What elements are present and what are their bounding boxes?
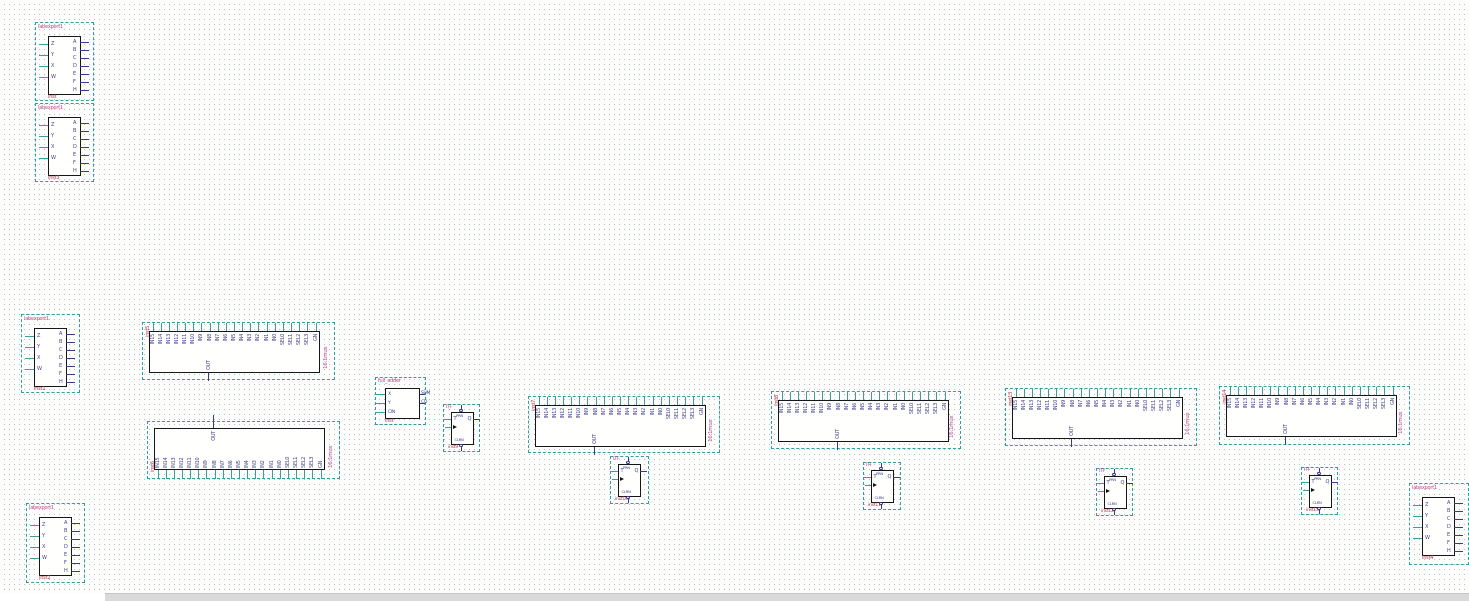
- mux-input-pin-stub[interactable]: [636, 397, 637, 405]
- mux-pin-label: IN9: [198, 334, 204, 342]
- mux-input-pin-stub[interactable]: [1254, 387, 1255, 395]
- mux-pin-label: IN4: [1102, 400, 1108, 408]
- mux-pin-label: IN5: [236, 460, 242, 468]
- output-pin-stub[interactable]: [80, 171, 89, 172]
- output-pin-stub[interactable]: [80, 155, 89, 156]
- mux-input-pin-stub[interactable]: [296, 470, 297, 479]
- mux-pin-label: IN5: [1308, 398, 1314, 406]
- input-pin-stub[interactable]: [39, 125, 48, 126]
- mux-input-pin-stub[interactable]: [1032, 389, 1033, 397]
- output-pin-stub[interactable]: [80, 58, 89, 59]
- mux-pin-label: IN12: [1037, 400, 1043, 410]
- mux-input-pin-stub[interactable]: [612, 397, 613, 405]
- mux-input-pin-stub[interactable]: [1230, 387, 1231, 395]
- mux-input-pin-stub[interactable]: [1303, 387, 1304, 395]
- component-type-label: labexport1: [38, 24, 63, 30]
- mux-input-pin-stub[interactable]: [1368, 387, 1369, 395]
- input-pin-stub[interactable]: [25, 369, 34, 370]
- clear-bubble-icon: [1317, 507, 1321, 511]
- mux-input-pin-stub[interactable]: [661, 397, 662, 405]
- output-pin-stub[interactable]: [80, 123, 89, 124]
- mux-pin-label: IN4: [868, 403, 874, 411]
- mux-input-pin-stub[interactable]: [1162, 389, 1163, 397]
- mux-input-pin-stub[interactable]: [847, 392, 848, 400]
- mux-out-pin-stub[interactable]: [837, 442, 838, 450]
- mux-input-pin-stub[interactable]: [628, 397, 629, 405]
- output-pin-stub[interactable]: [71, 547, 80, 548]
- output-pin-stub[interactable]: [1454, 527, 1463, 528]
- full_adder-fa1[interactable]: full_adderinstXYCINSUMCO: [375, 377, 426, 425]
- input-pin-stub[interactable]: [1413, 538, 1422, 539]
- mux-input-pin-stub[interactable]: [912, 392, 913, 400]
- instance-label: inst8: [774, 395, 780, 406]
- clock-pin-stub[interactable]: [445, 427, 451, 428]
- mux-input-pin-stub[interactable]: [620, 397, 621, 405]
- horizontal-scrollbar[interactable]: [105, 593, 1469, 601]
- mux-pin-label: SEL3: [304, 334, 310, 345]
- mux-input-pin-stub[interactable]: [201, 323, 202, 331]
- mux-pin-label: IN6: [1300, 398, 1306, 406]
- pin-label: E: [64, 553, 67, 558]
- mux-pin-label: IN12: [803, 403, 809, 413]
- mux-input-pin-stub[interactable]: [255, 470, 256, 479]
- mux-pin-label: SEL1: [288, 334, 294, 345]
- mux-input-pin-stub[interactable]: [1352, 387, 1353, 395]
- mux-pin-label: IN9: [1061, 400, 1067, 408]
- mux-input-pin-stub[interactable]: [210, 323, 211, 331]
- mux-out-pin-stub[interactable]: [1071, 439, 1072, 447]
- tff-t3[interactable]: TFFinst11PRNTQCLRN: [863, 462, 901, 510]
- mux-pin-label: IN14: [163, 457, 169, 467]
- mux-pin-label: IN14: [1235, 398, 1241, 408]
- mux-input-pin-stub[interactable]: [928, 392, 929, 400]
- mux-input-pin-stub[interactable]: [1393, 387, 1394, 395]
- pin-label: Q: [635, 469, 639, 474]
- tff-t4[interactable]: TFFinst12PRNTQCLRN: [1096, 468, 1133, 516]
- tff-t2[interactable]: TFFinst10PRNTQCLRN: [610, 456, 649, 504]
- input-pin-stub[interactable]: [30, 536, 39, 537]
- port_block-u2[interactable]: labexport1inst3ZYXWABCDEFH: [35, 103, 94, 182]
- mux-input-pin-stub[interactable]: [1154, 389, 1155, 397]
- input-pin-stub[interactable]: [30, 558, 39, 559]
- mux-input-pin-stub[interactable]: [904, 392, 905, 400]
- mux-input-pin-stub[interactable]: [1081, 389, 1082, 397]
- t-input-pin-stub[interactable]: [864, 477, 871, 478]
- mux-input-pin-stub[interactable]: [1064, 389, 1065, 397]
- mux-input-pin-stub[interactable]: [275, 323, 276, 331]
- instance-label: inst9: [448, 445, 458, 451]
- mux-input-pin-stub[interactable]: [1238, 387, 1239, 395]
- output-pin-stub[interactable]: [71, 531, 80, 532]
- mux-input-pin-stub[interactable]: [863, 392, 864, 400]
- mux-out-pin-stub[interactable]: [1285, 437, 1286, 445]
- mux-input-pin-stub[interactable]: [272, 470, 273, 479]
- input-pin-stub[interactable]: [25, 358, 34, 359]
- mux-input-pin-stub[interactable]: [604, 397, 605, 405]
- output-pin-stub[interactable]: [80, 139, 89, 140]
- instance-label: inst13: [1008, 392, 1014, 406]
- mux-input-pin-stub[interactable]: [1089, 389, 1090, 397]
- mux-input-pin-stub[interactable]: [1360, 387, 1361, 395]
- mux-input-pin-stub[interactable]: [215, 470, 216, 479]
- q-output-pin-stub[interactable]: [473, 419, 480, 420]
- instance-label: inst: [385, 418, 393, 424]
- input-pin-stub[interactable]: [30, 525, 39, 526]
- mux-input-pin-stub[interactable]: [644, 397, 645, 405]
- pin-label: CLRN: [1108, 502, 1117, 506]
- mux-pin-label: IN0: [1349, 398, 1355, 406]
- input-pin-stub[interactable]: [1413, 527, 1422, 528]
- input-pin-stub[interactable]: [376, 412, 385, 413]
- mux-input-pin-stub[interactable]: [839, 392, 840, 400]
- mux-input-pin-stub[interactable]: [1270, 387, 1271, 395]
- mux-input-pin-stub[interactable]: [1319, 387, 1320, 395]
- pin-label: Z: [51, 123, 54, 128]
- t-input-pin-stub[interactable]: [444, 419, 451, 420]
- mux-input-pin-stub[interactable]: [226, 323, 227, 331]
- output-pin-stub[interactable]: [1454, 551, 1463, 552]
- mux-out-pin-stub[interactable]: [208, 373, 209, 381]
- mux-input-pin-stub[interactable]: [190, 470, 191, 479]
- mux-input-pin-stub[interactable]: [312, 470, 313, 479]
- mux-input-pin-stub[interactable]: [218, 323, 219, 331]
- mux-pin-label: IN11: [182, 334, 188, 344]
- mux-input-pin-stub[interactable]: [291, 323, 292, 331]
- mux-input-pin-stub[interactable]: [879, 392, 880, 400]
- mux-input-pin-stub[interactable]: [185, 323, 186, 331]
- output-pin-stub[interactable]: [80, 74, 89, 75]
- mux-pin-label: IN9: [827, 403, 833, 411]
- input-pin-stub[interactable]: [39, 44, 48, 45]
- mux-input-pin-stub[interactable]: [1016, 389, 1017, 397]
- mux-input-pin-stub[interactable]: [283, 323, 284, 331]
- mux-input-pin-stub[interactable]: [571, 397, 572, 405]
- clock-triangle-icon: [453, 425, 457, 429]
- mux-input-pin-stub[interactable]: [1384, 387, 1385, 395]
- mux-input-pin-stub[interactable]: [247, 470, 248, 479]
- mux-input-pin-stub[interactable]: [547, 397, 548, 405]
- component-type-label: TFF: [1303, 469, 1310, 473]
- mux-input-pin-stub[interactable]: [182, 470, 183, 479]
- mux-input-pin-stub[interactable]: [267, 323, 268, 331]
- mux-input-pin-stub[interactable]: [174, 470, 175, 479]
- mux-input-pin-stub[interactable]: [1246, 387, 1247, 395]
- mux-pin-label: SEL2: [1159, 400, 1165, 411]
- mux-input-pin-stub[interactable]: [1097, 389, 1098, 397]
- pin-label: E: [59, 364, 62, 369]
- mux-input-pin-stub[interactable]: [1335, 387, 1336, 395]
- mux-input-pin-stub[interactable]: [161, 323, 162, 331]
- port_block-u3[interactable]: labexport1inst1ZYXWABCDEFH: [21, 314, 80, 393]
- mux-input-pin-stub[interactable]: [790, 392, 791, 400]
- t-input-pin-stub[interactable]: [1302, 482, 1309, 483]
- input-pin-stub[interactable]: [376, 403, 385, 404]
- t-input-pin-stub[interactable]: [611, 471, 618, 472]
- mux-input-pin-stub[interactable]: [677, 397, 678, 405]
- output-pin-stub[interactable]: [66, 374, 75, 375]
- mux-pin-label: SEL0: [1357, 398, 1363, 409]
- output-pin-stub[interactable]: [71, 571, 80, 572]
- mux-input-pin-stub[interactable]: [1262, 387, 1263, 395]
- mux-input-pin-stub[interactable]: [1376, 387, 1377, 395]
- mux-pin-label: IN5: [617, 408, 623, 416]
- instance-label: inst6: [150, 461, 156, 472]
- pin-label: Q: [468, 417, 472, 422]
- mux-input-pin-stub[interactable]: [1048, 389, 1049, 397]
- mux-input-pin-stub[interactable]: [193, 323, 194, 331]
- output-pin-stub[interactable]: [71, 555, 80, 556]
- output-pin-stub[interactable]: [66, 366, 75, 367]
- mux-pin-label: SEL3: [1381, 398, 1387, 409]
- mux-input-pin-stub[interactable]: [702, 397, 703, 405]
- mux-pin-label: SEL2: [301, 456, 307, 467]
- mux-pin-label: IN1: [650, 408, 656, 416]
- mux16-m6[interactable]: IN15IN14IN13IN12IN11IN10IN9IN8IN7IN6IN5I…: [1219, 386, 1410, 445]
- mux-input-pin-stub[interactable]: [177, 323, 178, 331]
- pin-label: W: [42, 556, 47, 561]
- input-pin-stub[interactable]: [39, 158, 48, 159]
- schematic-canvas[interactable]: labexport1instZYXWABCDEFHlabexport1inst3…: [0, 0, 1469, 601]
- port_block-u4[interactable]: labexport1inst2ZYXWABCDEFH: [26, 503, 85, 583]
- mux-input-pin-stub[interactable]: [321, 470, 322, 479]
- input-pin-stub[interactable]: [1413, 505, 1422, 506]
- q-output-pin-stub[interactable]: [1126, 483, 1133, 484]
- mux-input-pin-stub[interactable]: [896, 392, 897, 400]
- tff-t1[interactable]: TFFinst9PRNTQCLRN: [443, 404, 480, 452]
- mux-pin-label: IN1: [264, 334, 270, 342]
- output-pin-stub[interactable]: [80, 66, 89, 67]
- tff-t5[interactable]: TFFinst15PRNTQCLRN: [1301, 467, 1338, 515]
- mux-input-pin-stub[interactable]: [1327, 387, 1328, 395]
- output-pin-stub[interactable]: [1454, 519, 1463, 520]
- mux-pin-label: IN13: [1029, 400, 1035, 410]
- mux-input-pin-stub[interactable]: [1130, 389, 1131, 397]
- mux-input-pin-stub[interactable]: [169, 323, 170, 331]
- clock-pin-stub[interactable]: [1098, 491, 1104, 492]
- mux-input-pin-stub[interactable]: [887, 392, 888, 400]
- port_block-u5[interactable]: labexport1inst4ZYXWABCDEFH: [1409, 483, 1469, 565]
- mux-input-pin-stub[interactable]: [596, 397, 597, 405]
- mux-input-pin-stub[interactable]: [579, 397, 580, 405]
- component-type-label: labexport1: [29, 505, 54, 511]
- mux-input-pin-stub[interactable]: [288, 470, 289, 479]
- input-pin-stub[interactable]: [1413, 516, 1422, 517]
- output-pin-stub[interactable]: [71, 563, 80, 564]
- mux-input-pin-stub[interactable]: [198, 470, 199, 479]
- mux-input-pin-stub[interactable]: [936, 392, 937, 400]
- input-pin-stub[interactable]: [39, 66, 48, 67]
- mux-input-pin-stub[interactable]: [693, 397, 694, 405]
- component-type-label: TFF: [1098, 470, 1105, 474]
- mux-input-pin-stub[interactable]: [1179, 389, 1180, 397]
- input-pin-stub[interactable]: [25, 336, 34, 337]
- clock-triangle-icon: [873, 483, 877, 487]
- pin-label: H: [73, 169, 76, 174]
- input-pin-stub[interactable]: [39, 55, 48, 56]
- mux-input-pin-stub[interactable]: [1056, 389, 1057, 397]
- output-pin-stub[interactable]: [80, 50, 89, 51]
- output-pin-stub[interactable]: [1454, 535, 1463, 536]
- mux-input-pin-stub[interactable]: [1146, 389, 1147, 397]
- mux-input-pin-stub[interactable]: [798, 392, 799, 400]
- mux-input-pin-stub[interactable]: [223, 470, 224, 479]
- mux-pin-label: SEL1: [1151, 400, 1157, 411]
- mux-input-pin-stub[interactable]: [1344, 387, 1345, 395]
- mux-input-pin-stub[interactable]: [316, 323, 317, 331]
- output-pin-stub[interactable]: [1454, 543, 1463, 544]
- output-pin-stub[interactable]: [80, 163, 89, 164]
- mux-input-pin-stub[interactable]: [1278, 387, 1279, 395]
- pin-label: X: [42, 545, 45, 550]
- instance-label: inst14: [1222, 390, 1228, 404]
- mux-pin-label: IN0: [658, 408, 664, 416]
- mux-input-pin-stub[interactable]: [871, 392, 872, 400]
- mux-input-pin-stub[interactable]: [1105, 389, 1106, 397]
- output-pin-stub[interactable]: [66, 334, 75, 335]
- output-pin-stub[interactable]: [1454, 503, 1463, 504]
- mux-input-pin-stub[interactable]: [945, 392, 946, 400]
- mux-input-pin-stub[interactable]: [307, 323, 308, 331]
- mux-input-pin-stub[interactable]: [280, 470, 281, 479]
- mux-input-pin-stub[interactable]: [685, 397, 686, 405]
- mux-input-pin-stub[interactable]: [206, 470, 207, 479]
- clock-triangle-icon: [1106, 489, 1110, 493]
- mux-input-pin-stub[interactable]: [555, 397, 556, 405]
- pin-label: Q: [1121, 481, 1125, 486]
- mux-input-pin-stub[interactable]: [1121, 389, 1122, 397]
- output-pin-stub[interactable]: [80, 82, 89, 83]
- pin-label: CO: [421, 400, 427, 405]
- mux16-m2[interactable]: IN15IN14IN13IN12IN11IN10IN9IN8IN7IN6IN5I…: [147, 421, 340, 479]
- instance-label: inst2: [39, 575, 50, 581]
- mux-pin-label: IN7: [1078, 400, 1084, 408]
- input-pin-stub[interactable]: [39, 147, 48, 148]
- mux-input-pin-stub[interactable]: [830, 392, 831, 400]
- mux-input-pin-stub[interactable]: [1040, 389, 1041, 397]
- pin-label: Y: [51, 134, 54, 139]
- mux-input-pin-stub[interactable]: [653, 397, 654, 405]
- mux-input-pin-stub[interactable]: [158, 470, 159, 479]
- mux-pin-label: IN6: [609, 408, 615, 416]
- clock-pin-stub[interactable]: [612, 479, 618, 480]
- mux-input-pin-stub[interactable]: [1170, 389, 1171, 397]
- mux-input-pin-stub[interactable]: [822, 392, 823, 400]
- mux-out-pin-stub[interactable]: [594, 447, 595, 455]
- scrollbar-corner: [0, 594, 105, 601]
- mux-input-pin-stub[interactable]: [1113, 389, 1114, 397]
- mux-input-pin-stub[interactable]: [782, 392, 783, 400]
- output-pin-stub[interactable]: [80, 42, 89, 43]
- output-pin-stub[interactable]: [80, 147, 89, 148]
- clock-pin-stub[interactable]: [1303, 490, 1309, 491]
- output-pin-stub[interactable]: [80, 131, 89, 132]
- mux-pin-label: IN1: [1127, 400, 1133, 408]
- mux-input-pin-stub[interactable]: [669, 397, 670, 405]
- q-output-pin-stub[interactable]: [893, 477, 900, 478]
- mux-input-pin-stub[interactable]: [920, 392, 921, 400]
- pin-label: Y: [51, 53, 54, 58]
- input-pin-stub[interactable]: [25, 347, 34, 348]
- mux-out-pin-stub[interactable]: [213, 415, 214, 428]
- output-pin-stub[interactable]: [71, 539, 80, 540]
- mux16-m5[interactable]: IN15IN14IN13IN12IN11IN10IN9IN8IN7IN6IN5I…: [1005, 388, 1197, 446]
- mux-input-pin-stub[interactable]: [855, 392, 856, 400]
- pin-label: Z: [51, 42, 54, 47]
- output-pin-stub[interactable]: [66, 382, 75, 383]
- output-pin-stub[interactable]: [80, 90, 89, 91]
- port_block-u1[interactable]: labexport1instZYXWABCDEFH: [35, 22, 94, 101]
- mux-input-pin-stub[interactable]: [806, 392, 807, 400]
- mux-pin-label: IN5: [860, 403, 866, 411]
- mux-input-pin-stub[interactable]: [299, 323, 300, 331]
- pin-label: W: [51, 156, 56, 161]
- mux-input-pin-stub[interactable]: [1287, 387, 1288, 395]
- mux-input-pin-stub[interactable]: [166, 470, 167, 479]
- input-pin-stub[interactable]: [30, 547, 39, 548]
- mux-input-pin-stub[interactable]: [258, 323, 259, 331]
- mux-input-pin-stub[interactable]: [304, 470, 305, 479]
- mux-pin-label: IN8: [207, 334, 213, 342]
- output-pin-stub[interactable]: [71, 523, 80, 524]
- output-pin-stub[interactable]: [1454, 511, 1463, 512]
- mux-input-pin-stub[interactable]: [1295, 387, 1296, 395]
- mux-input-pin-stub[interactable]: [1311, 387, 1312, 395]
- mux-input-pin-stub[interactable]: [814, 392, 815, 400]
- pin-label: B: [73, 48, 76, 53]
- output-pin-stub[interactable]: [66, 350, 75, 351]
- pin-label: C: [73, 56, 76, 61]
- input-pin-stub[interactable]: [376, 394, 385, 395]
- mux-input-pin-stub[interactable]: [539, 397, 540, 405]
- input-pin-stub[interactable]: [39, 77, 48, 78]
- mux-pin-label: IN11: [187, 457, 193, 467]
- mux-pin-label: IN6: [852, 403, 858, 411]
- mux-input-pin-stub[interactable]: [153, 323, 154, 331]
- output-pin-stub[interactable]: [66, 358, 75, 359]
- mux-input-pin-stub[interactable]: [234, 323, 235, 331]
- mux-input-pin-stub[interactable]: [250, 323, 251, 331]
- mux-input-pin-stub[interactable]: [1024, 389, 1025, 397]
- q-output-pin-stub[interactable]: [1331, 482, 1338, 483]
- mux-input-pin-stub[interactable]: [1138, 389, 1139, 397]
- mux16-m4[interactable]: IN15IN14IN13IN12IN11IN10IN9IN8IN7IN6IN5I…: [771, 391, 961, 449]
- input-pin-stub[interactable]: [39, 136, 48, 137]
- mux-input-pin-stub[interactable]: [231, 470, 232, 479]
- t-input-pin-stub[interactable]: [1097, 483, 1104, 484]
- mux16-m3[interactable]: IN15IN14IN13IN12IN11IN10IN9IN8IN7IN6IN5I…: [528, 396, 720, 453]
- mux-input-pin-stub[interactable]: [263, 470, 264, 479]
- mux-pin-label: SEL0: [285, 456, 291, 467]
- pin-label: F: [1447, 541, 1450, 546]
- pin-label: W: [51, 75, 56, 80]
- mux-input-pin-stub[interactable]: [1073, 389, 1074, 397]
- component-type-label: 16:1mux: [708, 420, 714, 442]
- mux-input-pin-stub[interactable]: [242, 323, 243, 331]
- mux16-m1[interactable]: IN15IN14IN13IN12IN11IN10IN9IN8IN7IN6IN5I…: [142, 322, 335, 380]
- mux-out-label: OUT: [211, 431, 217, 441]
- mux-input-pin-stub[interactable]: [563, 397, 564, 405]
- q-output-pin-stub[interactable]: [640, 471, 647, 472]
- clock-pin-stub[interactable]: [865, 485, 871, 486]
- mux-input-pin-stub[interactable]: [587, 397, 588, 405]
- pin-label: T: [621, 469, 624, 474]
- mux-pin-label: IN10: [576, 408, 582, 418]
- output-pin-stub[interactable]: [66, 342, 75, 343]
- component-type-label: labexport1: [1412, 485, 1437, 491]
- mux-input-pin-stub[interactable]: [239, 470, 240, 479]
- mux-pin-label: IN7: [1292, 398, 1298, 406]
- mux-pin-label: IN5: [1094, 400, 1100, 408]
